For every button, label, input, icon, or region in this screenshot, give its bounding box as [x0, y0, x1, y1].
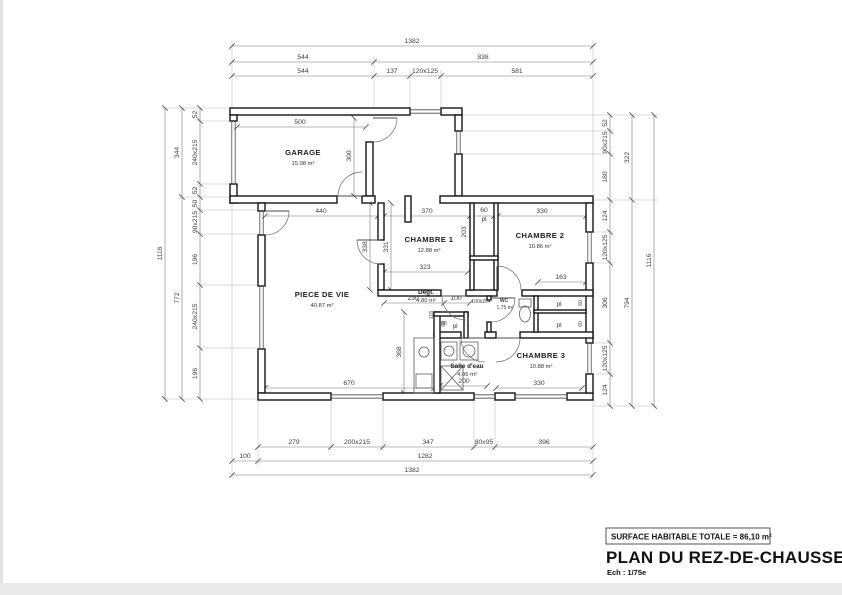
- dim-label: 772: [174, 292, 181, 304]
- dim-label: 52: [192, 111, 199, 119]
- closet-dim: 60: [578, 300, 584, 306]
- room-labels: GARAGE 15.08 m² PIECE DE VIE 40.87 m² CH…: [285, 148, 565, 378]
- closet-dim: 60: [441, 321, 447, 327]
- dim-label: 124: [602, 210, 609, 222]
- room-area-degagement: 4.80 m²: [416, 298, 436, 304]
- closet-label: pl: [556, 322, 562, 329]
- kitchen-appliance: [416, 374, 432, 388]
- dim-label: 794: [624, 297, 631, 309]
- plan-scale: Ech : 1/75e: [607, 568, 646, 577]
- floor-plan-drawing: 1382 544 838 544 137 120x125 581 279 200…: [0, 0, 842, 595]
- dim-label: 347: [422, 439, 434, 446]
- dim-label: 1382: [404, 38, 419, 45]
- dim-label: 331: [383, 241, 390, 253]
- room-area-chambre3: 10.88 m²: [530, 364, 553, 370]
- toilet-bowl: [520, 306, 531, 322]
- dim-label: 581: [511, 68, 523, 75]
- title-block: SURFACE HABITABLE TOTALE = 86,10 m² PLAN…: [606, 528, 842, 577]
- dim-label: 163: [555, 274, 567, 281]
- dim-label: 196: [192, 368, 199, 380]
- surface-total-label: SURFACE HABITABLE TOTALE = 86,10 m²: [611, 533, 772, 542]
- dim-label: 1382: [404, 467, 419, 474]
- dim-label: 544: [297, 68, 309, 75]
- closet-label: pl: [556, 301, 562, 308]
- room-area-chambre1: 12.88 m²: [418, 248, 441, 254]
- dim-label: 137: [386, 68, 398, 75]
- dim-label: 240x215: [192, 139, 199, 165]
- dimension-labels: 1382 544 838 544 137 120x125 581 279 200…: [157, 38, 653, 474]
- dim-label: 306: [602, 297, 609, 309]
- dim-label: 52: [192, 187, 199, 195]
- dim-label: 670: [343, 380, 355, 387]
- page-edge-bottom: [0, 583, 842, 595]
- extension-lines: [162, 40, 658, 478]
- room-name-piece-de-vie: PIECE DE VIE: [295, 290, 350, 299]
- dim-label: 330: [533, 380, 545, 387]
- dim-label: 1282: [417, 453, 432, 460]
- dim-label: 200x215: [344, 439, 370, 446]
- kitchen-sink: [419, 347, 429, 357]
- room-name-chambre1: CHAMBRE 1: [405, 235, 454, 244]
- washing-machine-drum: [444, 346, 454, 356]
- dim-label: 90x215: [192, 211, 199, 234]
- dim-label: 80x95: [475, 439, 494, 446]
- dim-label: 344: [174, 147, 181, 159]
- room-name-wc: WC: [500, 298, 509, 304]
- dim-label: 120x125: [602, 234, 609, 260]
- room-name-chambre3: CHAMBRE 3: [517, 351, 566, 360]
- closet-dim: 60: [578, 321, 584, 327]
- dim-label: 200: [458, 378, 470, 385]
- room-name-chambre2: CHAMBRE 2: [516, 231, 565, 240]
- room-area-salle-eau: 4.06 m²: [457, 372, 477, 378]
- dim-label: 1116: [157, 246, 164, 260]
- room-name-garage: GARAGE: [285, 148, 321, 157]
- dim-label: 100: [239, 453, 251, 460]
- dim-label: 52: [602, 119, 609, 127]
- dim-label: 118: [429, 311, 435, 319]
- room-name-salle-eau: Salle d'eau: [450, 363, 483, 370]
- dim-label: 124: [602, 384, 609, 396]
- dim-label: 440: [315, 208, 327, 215]
- closet-label: pl: [452, 323, 458, 330]
- room-area-chambre2: 10.86 m²: [529, 244, 552, 250]
- dim-label: 1116: [646, 253, 653, 267]
- kitchen-counter: [414, 338, 434, 393]
- dim-label: 120x125: [602, 345, 609, 371]
- floor-plan-page: 1382 544 838 544 137 120x125 581 279 200…: [0, 0, 842, 595]
- dim-label: 370: [421, 208, 433, 215]
- dim-label: 180: [602, 171, 609, 183]
- dim-label: 368: [396, 346, 403, 358]
- dim-label: 50: [192, 200, 199, 208]
- plan-title: PLAN DU REZ-DE-CHAUSSEE: [606, 548, 842, 567]
- dim-label: 90x215: [602, 131, 609, 154]
- dim-label: 330: [536, 208, 548, 215]
- room-name-degagement: Dégt.: [418, 289, 434, 296]
- dim-label: 500: [294, 119, 306, 126]
- dim-label: 838: [477, 54, 489, 61]
- dim-label: 338: [362, 241, 369, 253]
- dim-label: 322: [624, 152, 631, 164]
- dim-label: 120x125: [412, 68, 438, 75]
- dim-label: 203: [461, 226, 468, 238]
- dim-label: 240x215: [192, 303, 199, 329]
- dim-label: 100: [450, 295, 462, 302]
- washing-machine: [441, 342, 457, 360]
- dim-label: 300: [346, 150, 353, 162]
- dim-label: 100x204: [471, 299, 490, 305]
- room-area-garage: 15.08 m²: [292, 161, 315, 167]
- dim-label: 323: [419, 264, 431, 271]
- dim-label: 279: [288, 439, 300, 446]
- dim-label: 60: [480, 207, 488, 214]
- room-area-piece-de-vie: 40.87 m²: [311, 303, 334, 309]
- page-edge-left: [0, 0, 3, 595]
- closet-label: pl: [481, 216, 487, 223]
- dim-label: 196: [192, 254, 199, 266]
- room-area-wc: 1.75 m²: [497, 305, 514, 311]
- dim-label: 544: [297, 54, 309, 61]
- dim-label: 396: [538, 439, 550, 446]
